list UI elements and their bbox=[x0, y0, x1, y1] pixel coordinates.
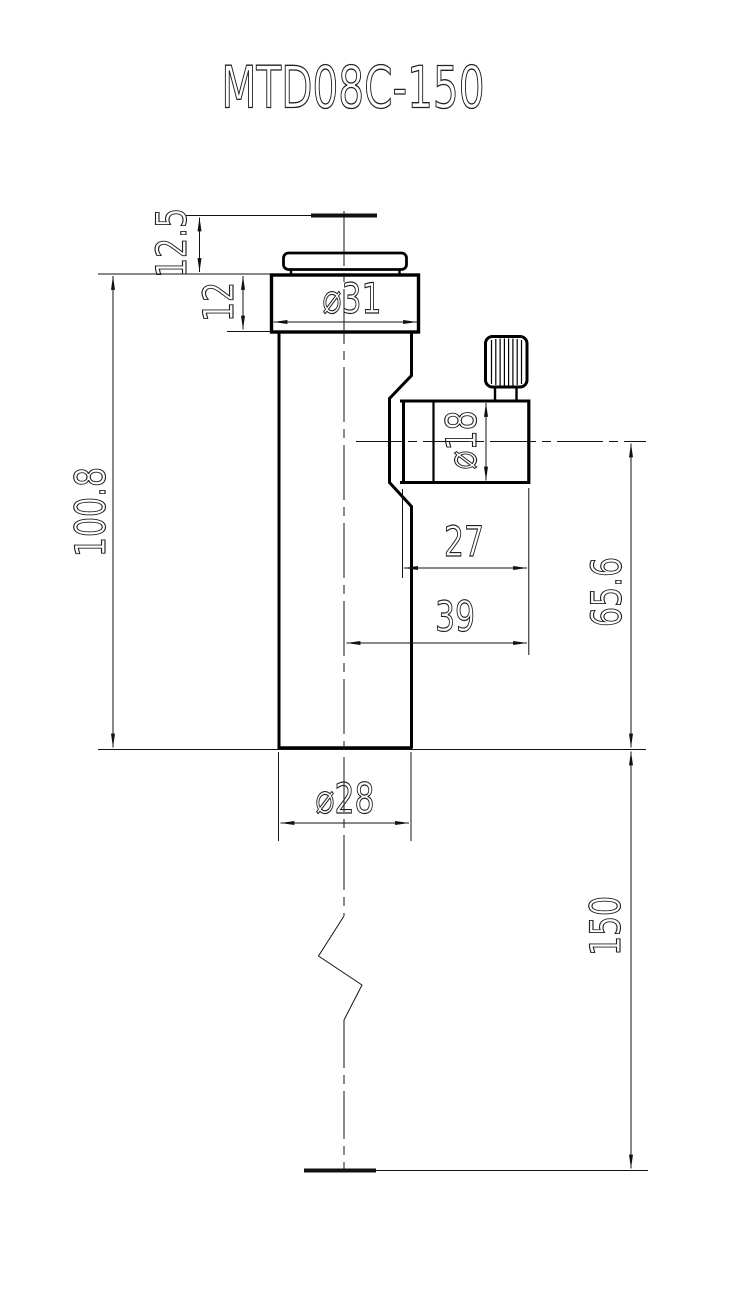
part-outline bbox=[272, 253, 531, 748]
technical-drawing: MTD08C-150 12.5 12 100.8 ⌀31 ⌀18 27 39 6… bbox=[0, 0, 730, 1300]
dim-label-port-diameter: ⌀18 bbox=[438, 410, 487, 469]
dim-label-port-face-width: 27 bbox=[444, 518, 484, 567]
body-right-edge-with-boss bbox=[390, 332, 412, 748]
dim-label-top-standoff: 12.5 bbox=[148, 208, 197, 278]
dim-label-head-height: 12 bbox=[195, 282, 244, 322]
dim-label-body-height: 100.8 bbox=[67, 467, 116, 557]
centerlines bbox=[319, 211, 647, 1171]
drawing-title: MTD08C-150 bbox=[221, 54, 484, 121]
dim-label-port-axis-width: 39 bbox=[435, 593, 475, 642]
cap-outline bbox=[284, 253, 407, 270]
break-zigzag bbox=[319, 916, 363, 1020]
dim-label-port-axis-height: 65.6 bbox=[583, 557, 632, 627]
dimension-lines bbox=[98, 216, 648, 1171]
drawing-canvas: MTD08C-150 12.5 12 100.8 ⌀31 ⌀18 27 39 6… bbox=[0, 0, 730, 1300]
dim-label-overall-height: 150 bbox=[582, 896, 631, 956]
labels: MTD08C-150 12.5 12 100.8 ⌀31 ⌀18 27 39 6… bbox=[67, 54, 632, 956]
knob-knurl-lines bbox=[492, 339, 522, 386]
dim-label-head-diameter: ⌀31 bbox=[322, 275, 381, 324]
dim-label-body-diameter: ⌀28 bbox=[315, 775, 374, 824]
